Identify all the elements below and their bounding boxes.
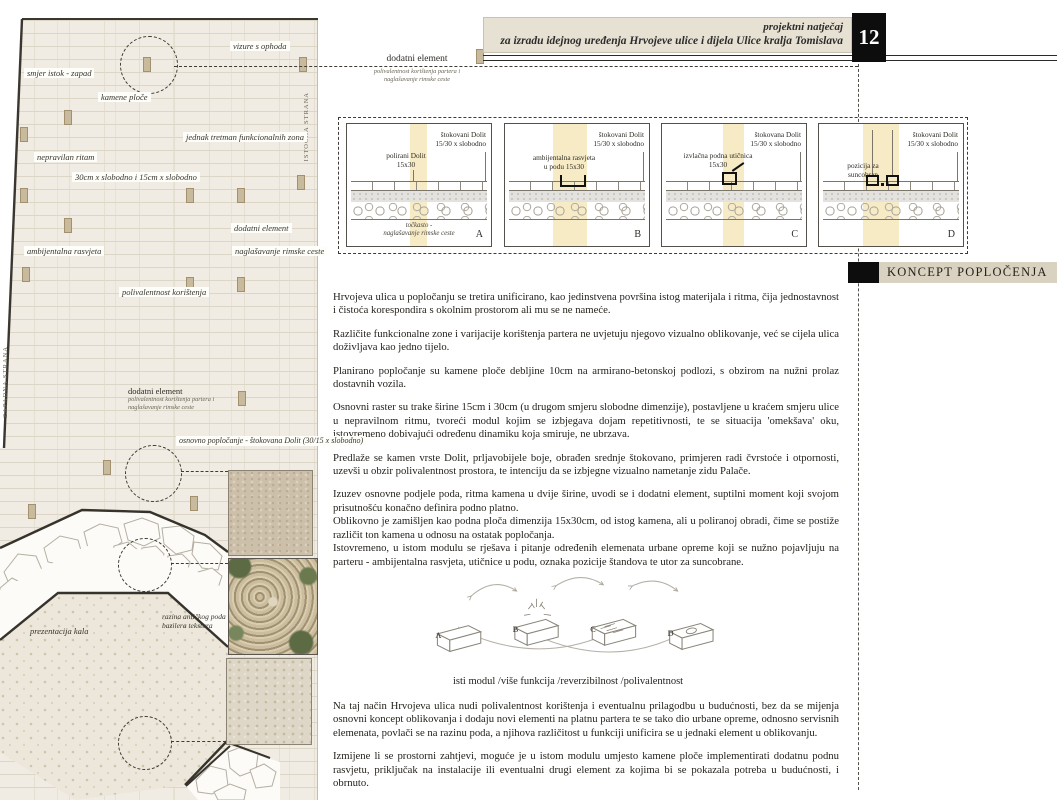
rubble-layer: [823, 203, 959, 220]
top-note-title: dodatni element: [342, 54, 492, 64]
label-leader-line: [643, 152, 644, 181]
page-number: 12: [852, 13, 886, 62]
detail-panel-c: štokovana Dolit 15/30 x slobodno izvlačn…: [661, 123, 807, 247]
detail-panel-d: štokovani Dolit 15/30 x slobodno pozicij…: [818, 123, 964, 247]
panel-bottom-note-line2: naglašavanje rimske ceste: [347, 230, 491, 238]
panel-left-label: ambijentalna rasvjeta u podu 15x30: [519, 154, 609, 171]
plan-label-naglasavanje: naglašavanje rimske ceste: [232, 246, 327, 256]
floor-light-channel-icon: [560, 175, 586, 187]
panel-bottom-note: točkasto - naglašavanje rimske ceste: [347, 222, 491, 238]
plan-label-zapadna-strana: ZAPADNA STRANA: [2, 346, 9, 418]
site-photo: [228, 558, 318, 655]
panel-right-label: štokovana Dolit 15/30 x slobodno: [750, 131, 801, 148]
paragraph: Istovremeno, u istom modulu se rješava i…: [333, 542, 839, 569]
plan-label-ambijentalna: ambijentalna rasvjeta: [24, 246, 104, 256]
competition-board-page: vizure s ophoda smjer istok - zapad kame…: [0, 0, 1057, 800]
concrete-layer: [666, 191, 802, 202]
paving-tile: [22, 267, 30, 282]
plan-label-vizure: vizure s ophoda: [230, 41, 290, 51]
header-double-rule: [483, 55, 1057, 61]
panel-right-label-line2: 15/30 x slobodno: [907, 140, 958, 149]
reversibility-arcs-bottom: [460, 628, 689, 652]
top-note-sub2: naglašavanje rimske ceste: [342, 76, 492, 84]
paragraph: Planirano popločanje su kamene ploče deb…: [333, 365, 839, 392]
detail-callout-circle: [118, 716, 172, 770]
panel-left-label-line2: u podu 15x30: [519, 163, 609, 172]
umbrella-pin-icon: [881, 183, 884, 186]
panel-right-label: štokovani Dolit 15/30 x slobodno: [435, 131, 486, 148]
floor-socket-icon: [722, 172, 737, 185]
detail-panel-a: štokovani Dolit 15/30 x slobodno poliran…: [346, 123, 492, 247]
concrete-layer: [823, 191, 959, 202]
umbrella-anchor-icon: [866, 175, 879, 186]
paving-tile: [237, 188, 245, 203]
module-diagram-caption: isti modul /više funkcija /reverzibilnos…: [453, 676, 839, 687]
detail-callout-circle: [118, 538, 172, 592]
module-letter: A: [435, 631, 441, 640]
plan-label-jednak: jednak tretman funkcionalnih zona: [183, 132, 307, 142]
plan-note-title: dodatni element: [128, 386, 248, 396]
panel-letter: D: [948, 229, 955, 240]
panel-left-label-line2: 15x30: [670, 161, 766, 170]
paragraph: Izuzev osnovne podjele poda, ritma kamen…: [333, 488, 839, 515]
section-title-bar: KONCEPT POPLOČENJA: [848, 262, 1057, 283]
paragraph: Različite funkcionalne zone i varijacije…: [333, 328, 839, 355]
plan-label-trake: 30cm x slobodno i 15cm x slobodno: [72, 172, 200, 182]
section-detail-panels-group: štokovani Dolit 15/30 x slobodno poliran…: [338, 117, 968, 254]
callout-leader-line: [174, 66, 858, 67]
body-text-column: Hrvojeva ulica u popločanju se tretira u…: [333, 291, 839, 800]
module-box-hole: [670, 623, 713, 649]
paving-tile: [186, 188, 194, 203]
rubble-layer: [351, 203, 487, 220]
module-letter: B: [513, 625, 519, 634]
panel-left-label-line2: 15x30: [371, 161, 441, 170]
paving-tile: [20, 188, 28, 203]
top-note-sub1: polivalentnost korištenja partera i: [342, 68, 492, 76]
panel-left-label-line2: suncobran: [833, 171, 893, 180]
reversibility-arcs-top: [470, 577, 676, 596]
section-title: KONCEPT POPLOČENJA: [887, 265, 1048, 280]
paving-tile: [103, 460, 111, 475]
label-leader-line: [800, 152, 801, 181]
umbrella-anchor-icon: [886, 175, 899, 186]
plan-label-osnovno: osnovno popločanje - štokovana Dolit (30…: [176, 436, 366, 446]
paragraph: Osnovni raster su trake širine 15cm i 30…: [333, 401, 839, 441]
plan-note-sub2: naglašavanje rimske ceste: [128, 404, 248, 412]
concrete-layer: [351, 191, 487, 202]
plan-label-kamene: kamene ploče: [98, 92, 151, 102]
rubble-layer: [509, 203, 645, 220]
rubble-layer: [666, 203, 802, 220]
module-letter: C: [590, 625, 596, 634]
detail-callout-circle: [120, 36, 178, 94]
section-title-marker: [848, 262, 879, 283]
concrete-layer: [509, 191, 645, 202]
detail-panel-b: štokovani Dolit 15/30 x slobodno ambijen…: [504, 123, 650, 247]
competition-header: projektni natječaj za izradu idejnog ure…: [483, 17, 852, 53]
label-leader-line: [957, 152, 958, 181]
plan-label-dodatni: dodatni element: [231, 223, 292, 233]
stone-texture-swatch: [228, 470, 313, 556]
header-title-line1: projektni natječaj: [484, 20, 843, 34]
panel-right-label: štokovani Dolit 15/30 x slobodno: [907, 131, 958, 148]
plan-label-razina-line2: bazilera tekstura: [162, 621, 226, 630]
stone-plate-layer: [351, 181, 487, 191]
paving-tile: [20, 127, 28, 142]
header-title-line2: za izradu idejnog uređenja Hrvojeve ulic…: [484, 34, 843, 49]
panel-right-label-line2: 15/30 x slobodno: [593, 140, 644, 149]
paragraph: Hrvojeva ulica u popločanju se tretira u…: [333, 291, 839, 318]
plan-label-polivalentnost: polivalentnost korištenja: [119, 287, 209, 297]
paving-tile: [64, 110, 72, 125]
panel-right-label-line2: 15/30 x slobodno: [435, 140, 486, 149]
callout-leader-line: [171, 741, 226, 742]
panel-letter: B: [634, 229, 641, 240]
module-box-plain: [437, 626, 480, 652]
paragraph: Oblikovno je zamišljen kao podna ploča d…: [333, 515, 839, 542]
paving-tile: [297, 175, 305, 190]
plan-label-smjer: smjer istok - zapad: [24, 68, 94, 78]
paving-tile: [237, 277, 245, 292]
detail-callout-circle: [125, 445, 182, 502]
panel-left-label: izvlačna podna utičnica 15x30: [670, 152, 766, 169]
paragraph: Na taj način Hrvojeva ulica nudi polival…: [333, 700, 839, 740]
paragraph: Izmijene li se prostorni zahtjevi, moguć…: [333, 750, 839, 790]
label-leader-line: [485, 152, 486, 181]
paving-tile: [190, 496, 198, 511]
top-note-dodatni-element: dodatni element polivalentnost korištenj…: [342, 54, 492, 83]
stone-texture-swatch-light: [226, 658, 312, 745]
paving-tile: [28, 504, 36, 519]
plan-top-border: [20, 18, 318, 20]
plan-note-dodatni-element: dodatni element polivalentnost korištenj…: [128, 386, 248, 411]
plan-note-sub1: polivalentnost korištenja partera i: [128, 396, 248, 404]
paragraph: Predlaže se kamen vrste Dolit, prljavobi…: [333, 452, 839, 479]
panel-right-label: štokovani Dolit 15/30 x slobodno: [593, 131, 644, 148]
plan-label-prezentacija: prezentacija kala: [30, 627, 88, 636]
callout-leader-line: [181, 471, 228, 472]
panel-right-label-line2: 15/30 x slobodno: [750, 140, 801, 149]
plan-label-razina: razina antičkog poda bazilera tekstura: [162, 612, 226, 630]
module-letter: D: [668, 629, 674, 638]
light-rays-icon: [524, 599, 551, 616]
panel-bottom-note-line1: točkasto -: [347, 222, 491, 230]
plan-label-nepravilan: nepravilan ritam: [34, 152, 97, 162]
callout-leader-line: [171, 563, 228, 564]
plan-label-razina-line1: razina antičkog poda: [162, 612, 226, 621]
panel-left-label: pozicija za suncobran: [833, 162, 893, 179]
panel-left-label: polirani Dolit 15x30: [371, 152, 441, 169]
paving-tile: [64, 218, 72, 233]
label-leader-line: [413, 170, 414, 181]
panel-letter: A: [476, 229, 483, 240]
paving-tile: [299, 57, 307, 72]
panel-letter: C: [791, 229, 798, 240]
module-diagram: A B C D: [429, 574, 739, 675]
plan-label-istocna-strana: ISTOČNA STRANA: [303, 92, 310, 161]
